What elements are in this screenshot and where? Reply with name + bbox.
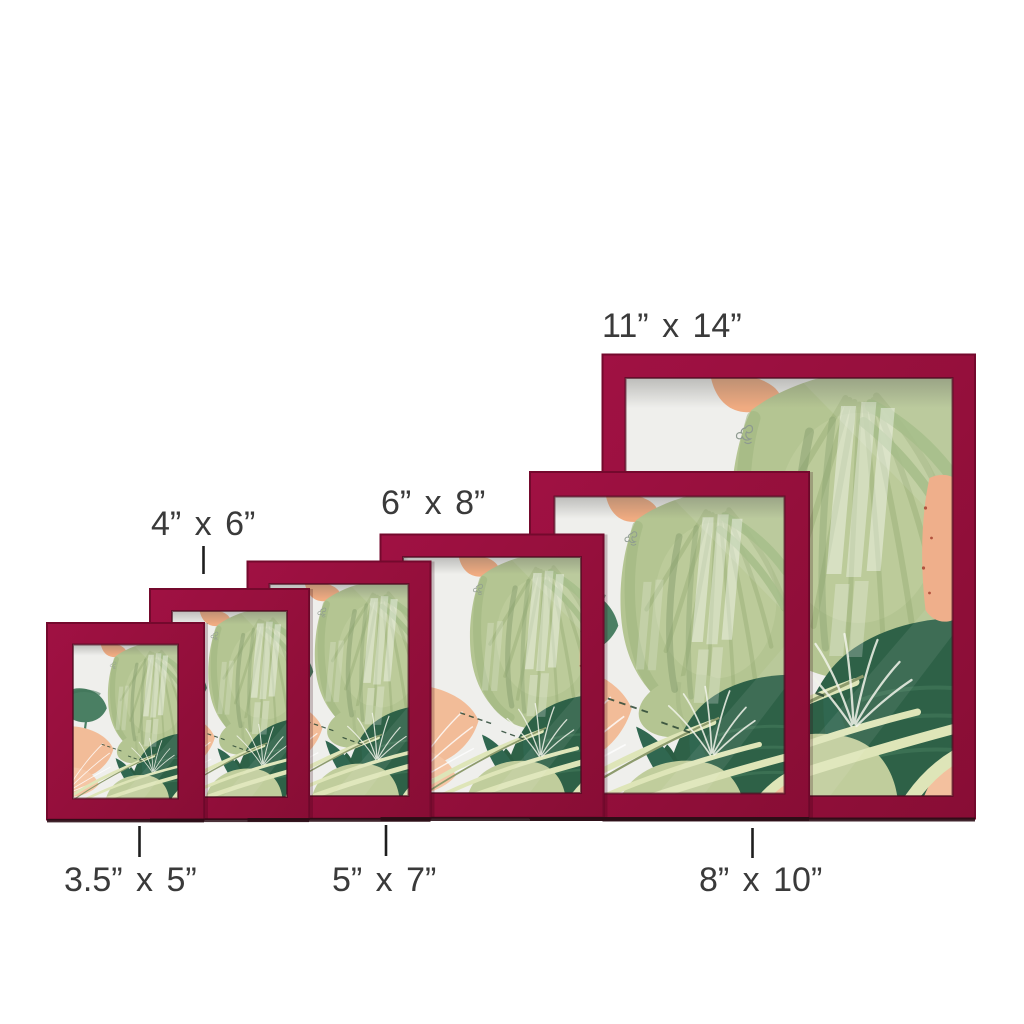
svg-text:4” x 6”: 4” x 6” [151,505,255,543]
svg-text:6” x 8”: 6” x 8” [381,484,485,522]
svg-text:11” x 14”: 11” x 14” [602,307,742,345]
svg-text:5” x 7”: 5” x 7” [332,861,436,899]
svg-text:3.5” x 5”: 3.5” x 5” [64,861,197,899]
svg-text:8” x 10”: 8” x 10” [699,861,822,899]
